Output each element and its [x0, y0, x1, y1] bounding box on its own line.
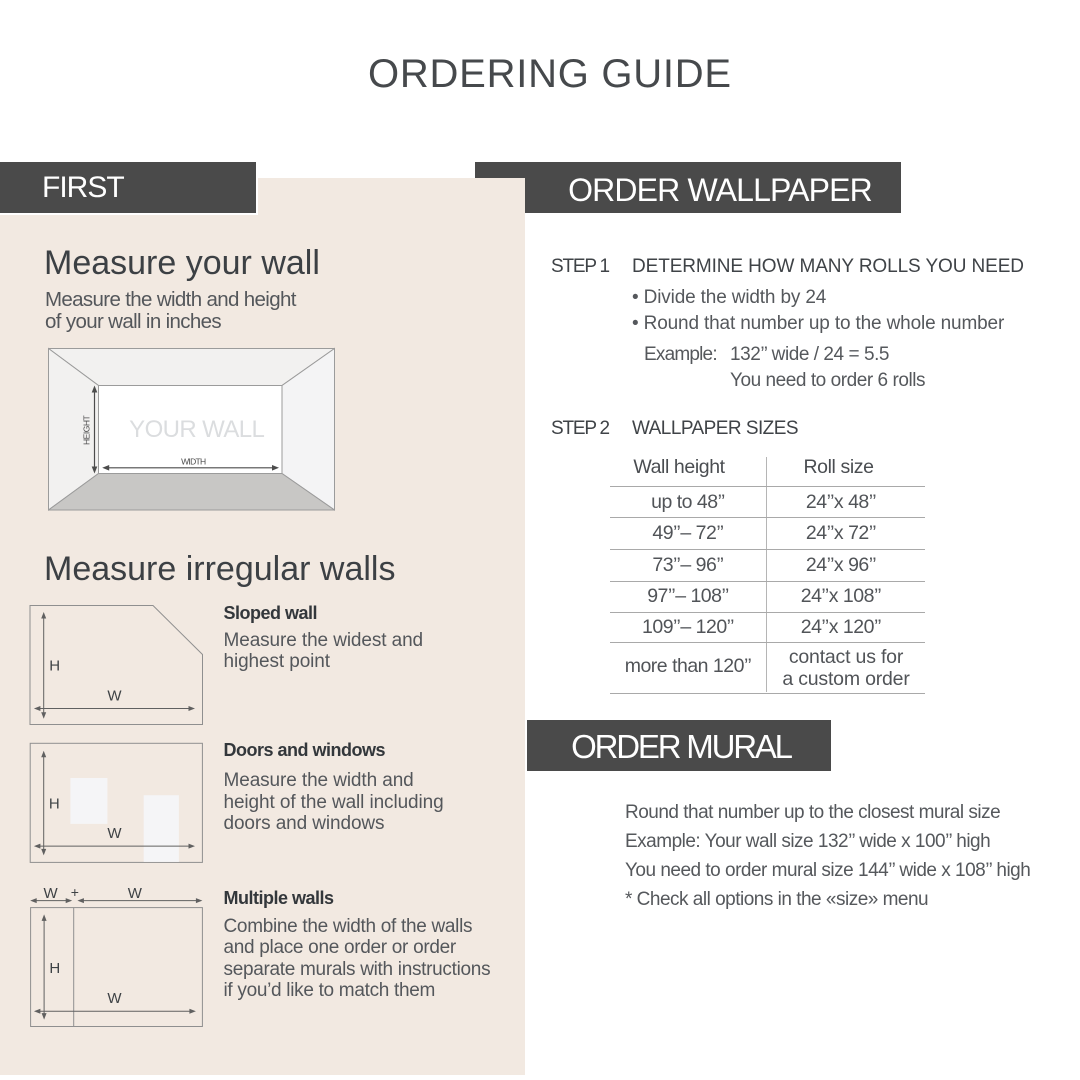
svg-text:H: H [49, 796, 60, 813]
svg-text:W: W [44, 885, 59, 902]
svg-text:YOUR WALL: YOUR WALL [129, 416, 264, 443]
svg-text:W: W [107, 990, 122, 1007]
svg-text:+: + [71, 884, 79, 900]
svg-text:H: H [49, 960, 60, 977]
svg-text:WIDTH: WIDTH [181, 456, 206, 466]
svg-text:W: W [107, 825, 122, 842]
svg-text:W: W [128, 885, 143, 902]
svg-text:H: H [49, 657, 60, 674]
svg-text:W: W [107, 687, 122, 704]
svg-text:HEIGHT: HEIGHT [82, 416, 92, 445]
